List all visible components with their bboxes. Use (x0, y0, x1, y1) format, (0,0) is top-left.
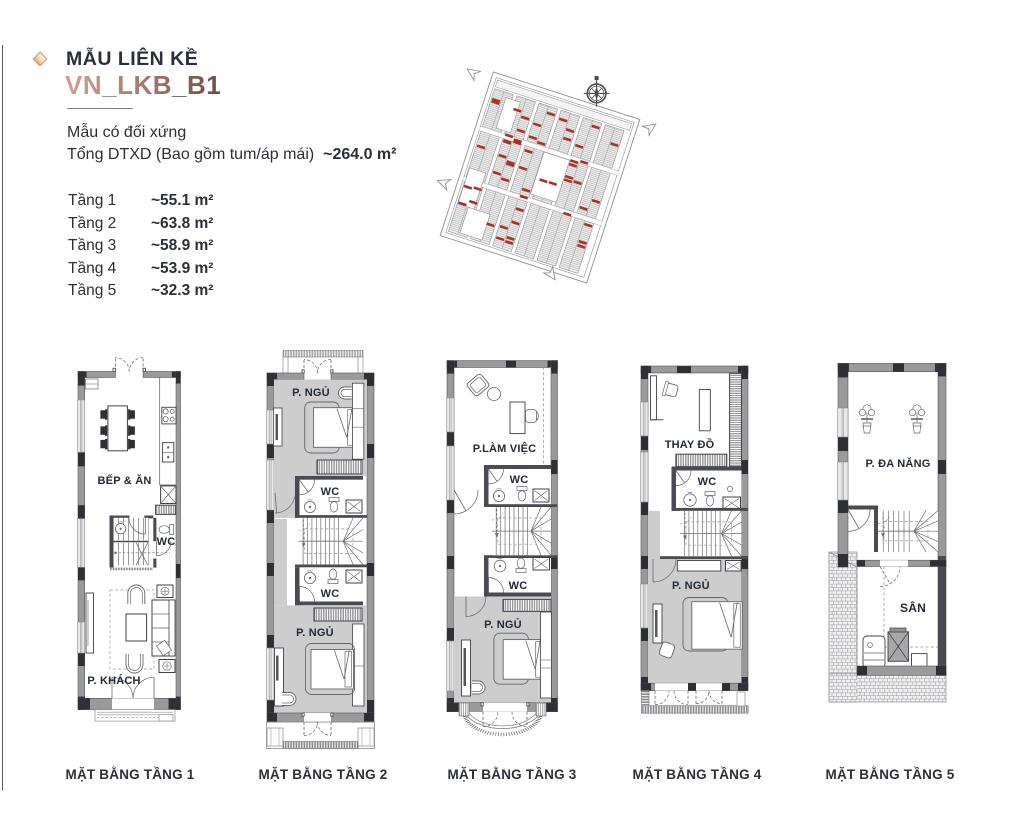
svg-text:WC: WC (509, 580, 528, 592)
svg-text:WC: WC (510, 474, 529, 486)
svg-text:SÂN: SÂN (900, 600, 926, 615)
svg-text:WC: WC (321, 486, 340, 498)
svg-text:P. NGỦ: P. NGỦ (672, 579, 710, 592)
svg-text:P. NGỦ: P. NGỦ (292, 386, 330, 399)
svg-text:BẾP & ĂN: BẾP & ĂN (98, 474, 152, 487)
svg-text:WC: WC (698, 476, 717, 488)
svg-text:P. NGỦ: P. NGỦ (484, 618, 522, 631)
svg-text:P. NGỦ: P. NGỦ (296, 626, 334, 639)
svg-text:P.LÀM VIỆC: P.LÀM VIỆC (473, 442, 537, 455)
svg-text:THAY ĐỒ: THAY ĐỒ (665, 438, 715, 451)
svg-text:WC: WC (321, 588, 340, 600)
svg-text:P. KHÁCH: P. KHÁCH (87, 674, 140, 687)
svg-text:P. ĐA NĂNG: P. ĐA NĂNG (866, 457, 931, 470)
svg-text:WC: WC (157, 536, 176, 548)
